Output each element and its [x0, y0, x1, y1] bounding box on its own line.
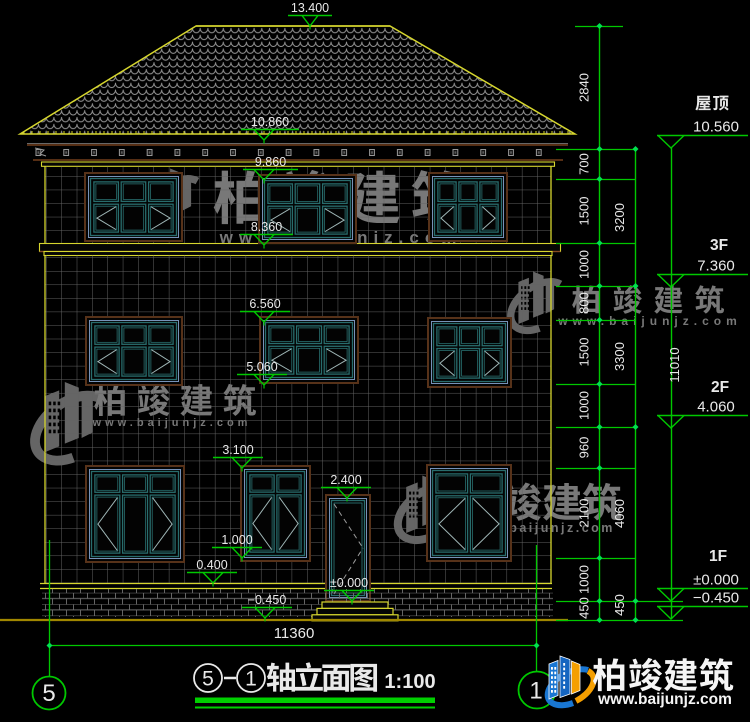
svg-text:1500: 1500	[577, 197, 592, 226]
svg-text:1: 1	[245, 668, 257, 691]
svg-text:−0.450: −0.450	[693, 590, 739, 607]
svg-text:1000: 1000	[577, 250, 592, 279]
svg-text:450: 450	[577, 597, 592, 619]
svg-text:1.000: 1.000	[221, 533, 252, 547]
svg-text:4060: 4060	[612, 499, 627, 528]
svg-text:1500: 1500	[577, 338, 592, 367]
svg-text:1F: 1F	[709, 548, 727, 565]
svg-text:2100: 2100	[577, 499, 592, 528]
svg-text:0.400: 0.400	[196, 558, 227, 572]
svg-text:11360: 11360	[274, 625, 315, 642]
svg-text:3F: 3F	[710, 237, 728, 254]
svg-text:2840: 2840	[577, 73, 592, 102]
svg-text:4.060: 4.060	[697, 399, 735, 416]
svg-text:11010: 11010	[667, 347, 682, 382]
svg-text:2F: 2F	[711, 379, 729, 396]
svg-text:13.400: 13.400	[291, 1, 329, 15]
svg-text:±0.000: ±0.000	[693, 572, 739, 589]
svg-text:2.400: 2.400	[330, 473, 361, 487]
svg-text:9.860: 9.860	[255, 155, 286, 169]
svg-text:6.560: 6.560	[249, 297, 280, 311]
svg-text:3200: 3200	[612, 203, 627, 232]
svg-text:960: 960	[577, 437, 592, 459]
svg-text:1: 1	[529, 678, 542, 705]
svg-text:10.560: 10.560	[693, 119, 739, 136]
svg-text:5.060: 5.060	[246, 360, 277, 374]
svg-text:−0.450: −0.450	[248, 593, 287, 607]
svg-text:800: 800	[577, 292, 592, 314]
svg-text:8.360: 8.360	[251, 220, 282, 234]
svg-text:7.360: 7.360	[697, 258, 735, 275]
svg-text:1000: 1000	[577, 565, 592, 594]
svg-text:450: 450	[612, 594, 627, 616]
svg-text:1000: 1000	[577, 391, 592, 420]
svg-text:5: 5	[42, 680, 55, 707]
svg-text:1:100: 1:100	[384, 671, 435, 693]
svg-text:10.860: 10.860	[251, 115, 289, 129]
svg-text:±0.000: ±0.000	[330, 576, 368, 590]
svg-text:3.100: 3.100	[222, 443, 253, 457]
svg-text:5: 5	[202, 668, 214, 691]
svg-text:3300: 3300	[612, 342, 627, 371]
svg-text:700: 700	[577, 153, 592, 175]
svg-text:www.baijunjz.com: www.baijunjz.com	[597, 691, 732, 708]
